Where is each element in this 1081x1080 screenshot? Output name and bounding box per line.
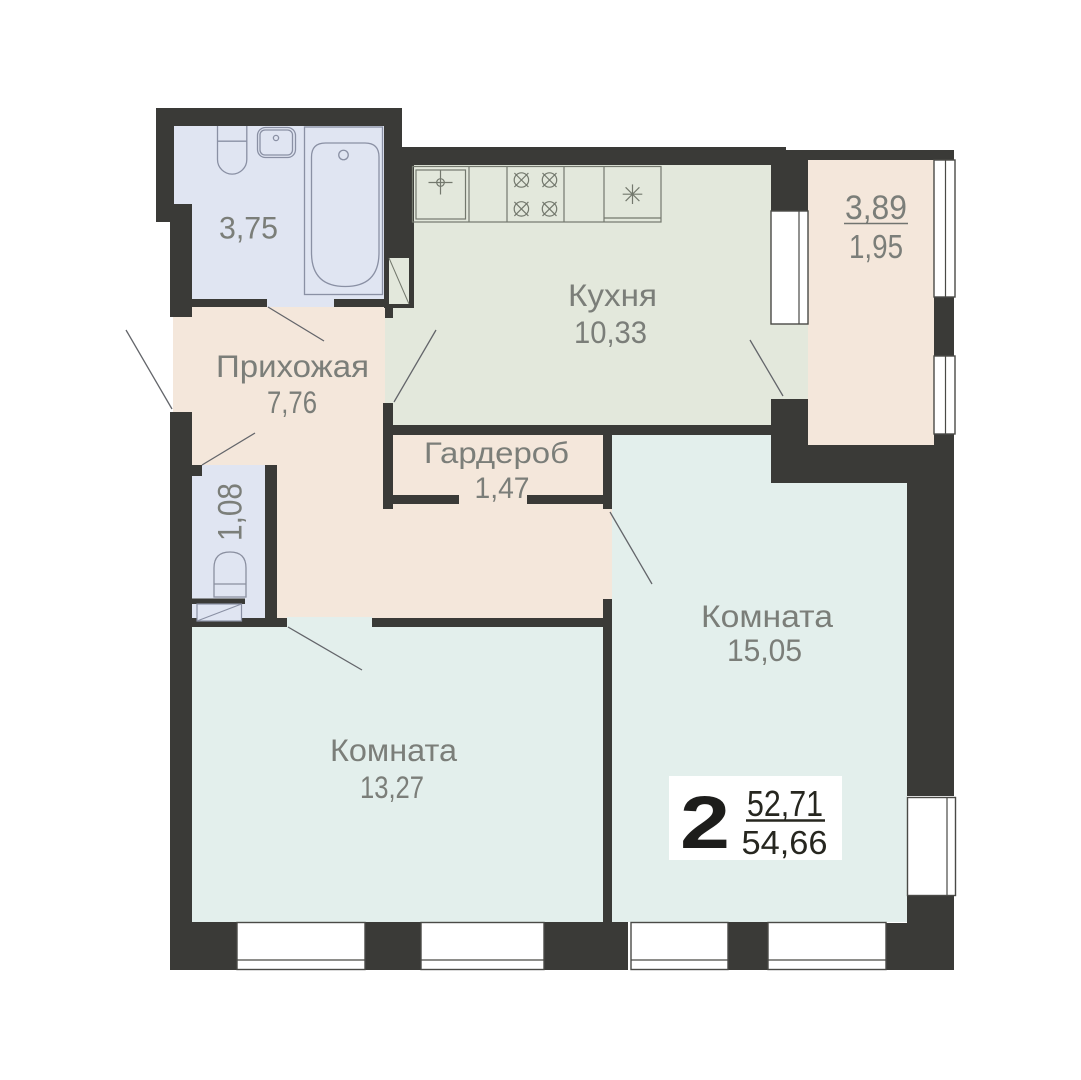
svg-text:1,95: 1,95	[849, 228, 903, 265]
svg-text:54,66: 54,66	[742, 824, 828, 861]
svg-text:3,89: 3,89	[845, 189, 907, 227]
svg-text:Комната: Комната	[701, 598, 834, 634]
svg-text:1,08: 1,08	[212, 483, 250, 541]
svg-text:7,76: 7,76	[267, 384, 317, 420]
svg-text:Гардероб: Гардероб	[424, 437, 569, 470]
svg-text:52,71: 52,71	[747, 783, 823, 824]
svg-text:2: 2	[680, 781, 730, 864]
svg-text:3,75: 3,75	[219, 210, 278, 246]
svg-text:Комната: Комната	[330, 732, 457, 768]
svg-text:Прихожая: Прихожая	[216, 348, 369, 384]
svg-text:15,05: 15,05	[727, 632, 802, 668]
svg-text:Кухня: Кухня	[568, 277, 657, 313]
svg-text:13,27: 13,27	[360, 769, 424, 805]
svg-text:1,47: 1,47	[475, 472, 530, 505]
svg-text:10,33: 10,33	[574, 314, 647, 350]
